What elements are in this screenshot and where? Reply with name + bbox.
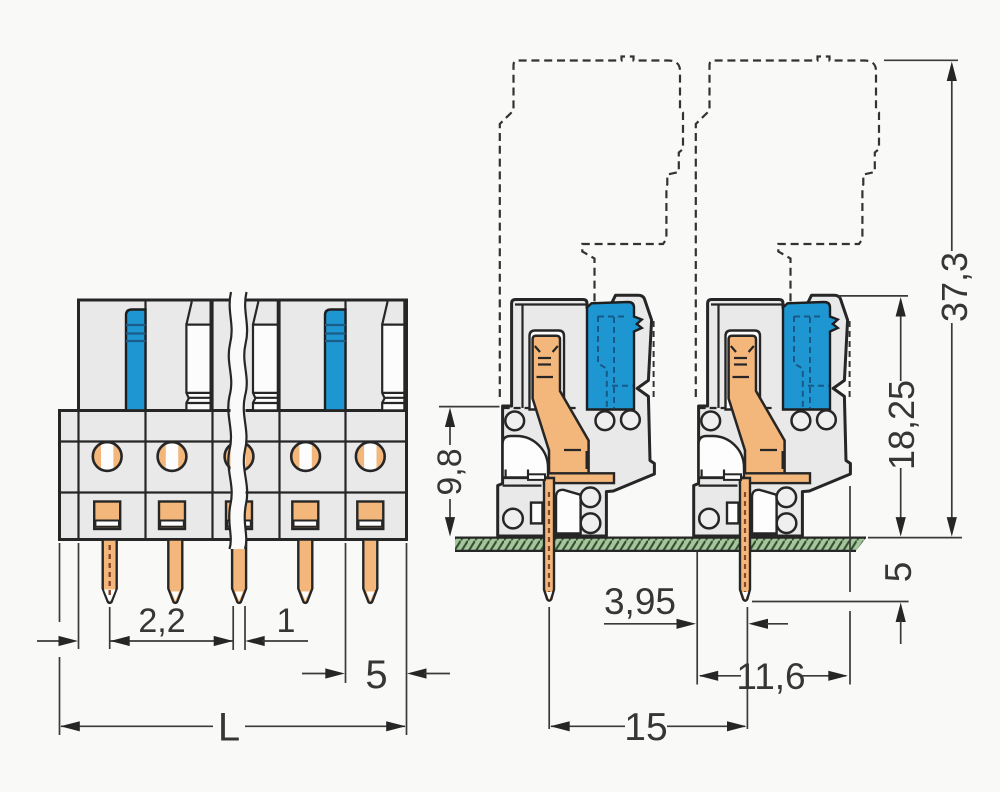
svg-text:1: 1 [277,602,296,640]
svg-text:11,6: 11,6 [736,656,805,697]
svg-text:9,8: 9,8 [431,448,469,495]
svg-text:5: 5 [878,562,919,583]
svg-text:37,3: 37,3 [934,252,975,322]
svg-text:18,25: 18,25 [881,380,922,470]
svg-text:3,95: 3,95 [604,581,676,622]
svg-text:2,2: 2,2 [138,602,185,640]
svg-text:15: 15 [624,706,667,749]
svg-text:L: L [218,706,240,750]
svg-text:5: 5 [365,653,387,697]
